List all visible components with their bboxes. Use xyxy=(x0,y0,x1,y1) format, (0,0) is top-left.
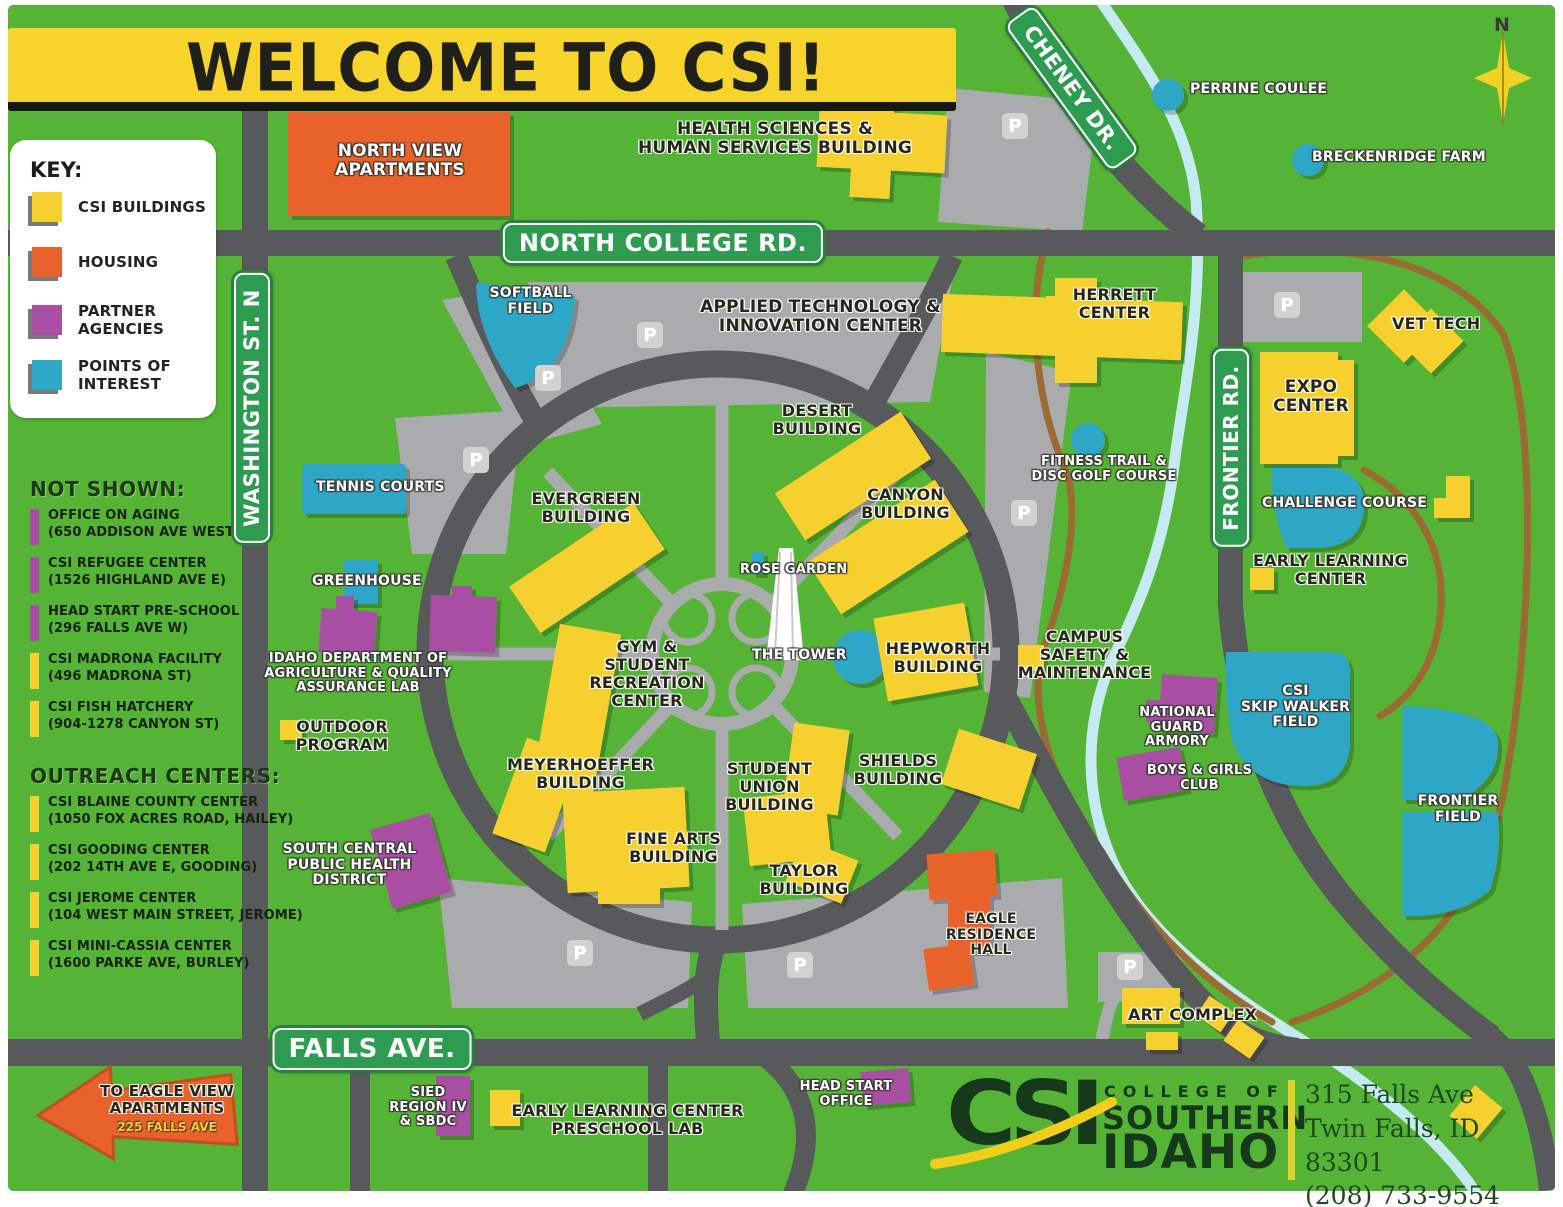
road-sign-north-college: NORTH COLLEGE RD. xyxy=(503,223,823,263)
label-taylor-building: TAYLOR BUILDING xyxy=(750,862,858,898)
list-item: HEAD START PRE-SCHOOL(296 FALLS AVE W) xyxy=(30,604,239,641)
label-campus-safety: CAMPUS SAFETY & MAINTENANCE xyxy=(1012,628,1157,682)
logo-divider xyxy=(1288,1080,1295,1180)
label-north-view-apartments: NORTH VIEW APARTMENTS xyxy=(300,142,500,180)
key-heading: KEY: xyxy=(30,158,82,182)
label-canyon-building: CANYON BUILDING xyxy=(848,486,963,522)
label-gym-rec-center: GYM & STUDENT RECREATION CENTER xyxy=(582,638,712,710)
list-item: CSI MADRONA FACILITY(496 MADRONA ST) xyxy=(30,652,222,689)
road-sign-washington: WASHINGTON ST. N xyxy=(234,273,270,543)
label-desert-building: DESERT BUILDING xyxy=(762,402,872,438)
csi-marker xyxy=(30,653,39,689)
label-the-tower: THE TOWER xyxy=(752,648,847,664)
label-evergreen-building: EVERGREEN BUILDING xyxy=(516,490,656,526)
csi-marker xyxy=(30,701,39,737)
label-shields-building: SHIELDS BUILDING xyxy=(848,752,948,788)
outreach-heading: OUTREACH CENTERS: xyxy=(30,764,280,788)
partner-marker xyxy=(30,557,39,593)
label-greenhouse: GREENHOUSE xyxy=(312,574,422,590)
parking-icon: P xyxy=(1002,113,1028,139)
partner-agencies-swatch xyxy=(32,305,62,335)
partner-marker xyxy=(30,509,39,545)
label-softball-field: SOFTBALL FIELD xyxy=(478,286,583,317)
compass-north-label: N xyxy=(1494,14,1510,36)
logo-idaho: IDAHO xyxy=(1102,1129,1279,1176)
label-student-union-building: STUDENT UNION BUILDING xyxy=(722,760,817,814)
label-art-complex: ART COMPLEX xyxy=(1128,1006,1257,1024)
csi-marker xyxy=(30,940,39,976)
list-item: CSI FISH HATCHERY(904-1278 CANYON ST) xyxy=(30,700,219,737)
label-frontier-field: FRONTIER FIELD xyxy=(1408,794,1508,825)
parking-icon: P xyxy=(1117,954,1143,980)
label-breckenridge-farm: BRECKENRIDGE FARM xyxy=(1312,150,1486,166)
key-item-housing: HOUSING xyxy=(32,247,158,277)
eagle-view-arrow-text: TO EAGLE VIEW APARTMENTS xyxy=(96,1083,238,1117)
road-sign-falls: FALLS AVE. xyxy=(273,1028,472,1070)
label-hepworth-building: HEPWORTH BUILDING xyxy=(878,640,998,676)
label-boys-girls-club: BOYS & GIRLS CLUB xyxy=(1142,764,1257,793)
label-outdoor-program: OUTDOOR PROGRAM xyxy=(286,718,398,754)
eagle-view-arrow-address: 225 FALLS AVE xyxy=(96,1120,238,1134)
csi-logo: CSI xyxy=(946,1062,1096,1165)
label-national-guard-armory: NATIONAL GUARD ARMORY xyxy=(1132,706,1222,750)
list-item: CSI BLAINE COUNTY CENTER(1050 FOX ACRES … xyxy=(30,795,293,832)
list-item: OFFICE ON AGING(650 ADDISON AVE WEST) xyxy=(30,508,240,545)
label-expo-center: EXPO CENTER xyxy=(1256,378,1366,416)
label-preschool-lab: EARLY LEARNING CENTER PRESCHOOL LAB xyxy=(500,1102,755,1138)
parking-icon: P xyxy=(1274,292,1300,318)
key-item-points-of-interest: POINTS OF INTEREST xyxy=(32,357,216,393)
csi-marker xyxy=(30,796,39,832)
label-south-central-health: SOUTH CENTRAL PUBLIC HEALTH DISTRICT xyxy=(272,842,427,889)
key-item-csi-buildings: CSI BUILDINGS xyxy=(32,192,206,222)
list-item: CSI REFUGEE CENTER(1526 HIGHLAND AVE E) xyxy=(30,556,226,593)
parking-icon: P xyxy=(787,952,813,978)
campus-map: WELCOME TO CSI! KEY: CSI BUILDINGS HOUSI… xyxy=(0,0,1563,1207)
parking-icon: P xyxy=(637,322,663,348)
label-perrine-coulee: PERRINE COULEE xyxy=(1190,82,1327,98)
csi-buildings-swatch xyxy=(32,192,62,222)
housing-swatch xyxy=(32,247,62,277)
parking-icon: P xyxy=(463,447,489,473)
label-skip-walker-field: CSI SKIP WALKER FIELD xyxy=(1238,684,1353,731)
perrine-coulee-marker xyxy=(1152,79,1184,111)
label-applied-tech: APPLIED TECHNOLOGY & INNOVATION CENTER xyxy=(688,298,953,336)
label-eagle-residence-hall: EAGLE RESIDENCE HALL xyxy=(932,912,1050,959)
list-item: CSI JEROME CENTER(104 WEST MAIN STREET, … xyxy=(30,891,303,928)
parking-icon: P xyxy=(1011,500,1037,526)
not-shown-heading: NOT SHOWN: xyxy=(30,477,185,501)
label-tennis-courts: TENNIS COURTS xyxy=(316,480,445,496)
label-head-start-office: HEAD START OFFICE xyxy=(792,1080,900,1109)
label-idaho-ag-lab: IDAHO DEPARTMENT OF AGRICULTURE & QUALIT… xyxy=(258,652,458,696)
label-sied-region: SIED REGION IV & SBDC xyxy=(384,1086,472,1130)
partner-marker xyxy=(30,605,39,641)
key-item-partner-agencies: PARTNER AGENCIES xyxy=(32,302,216,338)
label-challenge-course: CHALLENGE COURSE xyxy=(1262,496,1427,512)
list-item: CSI MINI-CASSIA CENTER(1600 PARKE AVE, B… xyxy=(30,939,250,976)
parking-icon: P xyxy=(535,365,561,391)
label-fine-arts-building: FINE ARTS BUILDING xyxy=(616,830,731,866)
parking-icon: P xyxy=(567,940,593,966)
csi-marker xyxy=(30,844,39,880)
label-health-sciences: HEALTH SCIENCES & HUMAN SERVICES BUILDIN… xyxy=(615,120,935,158)
label-fitness-trail: FITNESS TRAIL & DISC GOLF COURSE xyxy=(1024,455,1184,484)
fitness-trail-marker xyxy=(1071,423,1105,457)
title-banner: WELCOME TO CSI! xyxy=(8,28,956,111)
label-early-learning-center: EARLY LEARNING CENTER xyxy=(1238,552,1423,588)
points-of-interest-swatch xyxy=(32,360,62,390)
map-key: KEY: CSI BUILDINGS HOUSING PARTNER AGENC… xyxy=(10,140,216,418)
page-title: WELCOME TO CSI! xyxy=(186,30,826,107)
label-rose-garden: ROSE GARDEN xyxy=(740,563,847,578)
csi-marker xyxy=(30,892,39,928)
label-meyerhoeffer-building: MEYERHOEFFER BUILDING xyxy=(498,756,663,792)
road-sign-frontier: FRONTIER RD. xyxy=(1213,349,1249,547)
list-item: CSI GOODING CENTER(202 14TH AVE E, GOODI… xyxy=(30,843,257,880)
label-vet-tech: VET TECH xyxy=(1392,315,1480,333)
logo-address: 315 Falls Ave Twin Falls, ID 83301 (208)… xyxy=(1305,1078,1563,1207)
label-herrett-center: HERRETT CENTER xyxy=(1057,286,1172,322)
